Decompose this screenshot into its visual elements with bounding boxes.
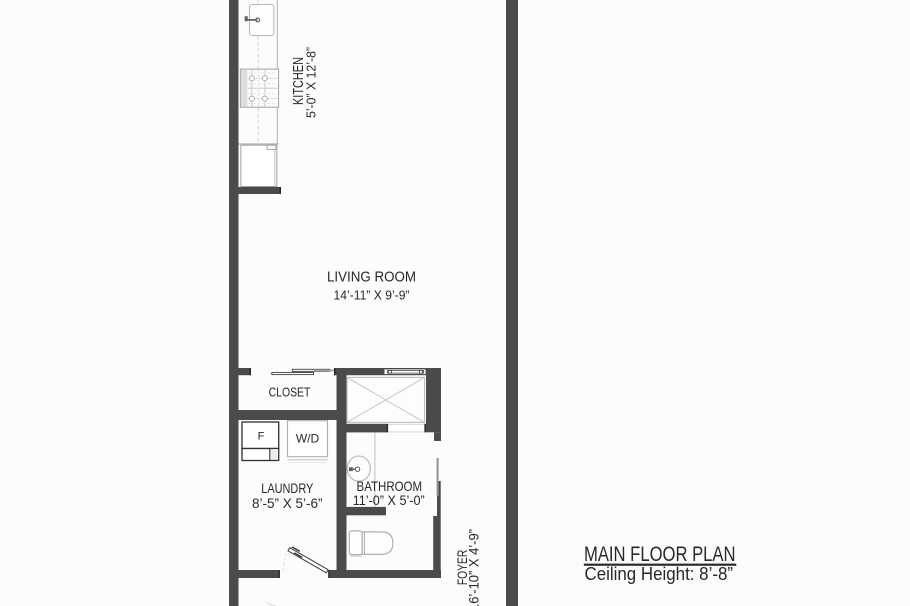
svg-text:LAUNDRY: LAUNDRY: [261, 480, 314, 496]
svg-text:5’-0” X 12’-8”: 5’-0” X 12’-8”: [303, 47, 318, 118]
svg-text:11’-0” X 5’-0”: 11’-0” X 5’-0”: [353, 493, 425, 508]
svg-text:BATHROOM: BATHROOM: [357, 478, 423, 494]
svg-text:W/D: W/D: [296, 432, 320, 446]
svg-text:16’-10” X 4’-9”: 16’-10” X 4’-9”: [466, 529, 481, 606]
svg-text:14’-11” X 9’-9”: 14’-11” X 9’-9”: [334, 288, 410, 303]
svg-text:F: F: [258, 430, 265, 442]
svg-text:CLOSET: CLOSET: [269, 385, 311, 399]
svg-text:LIVING ROOM: LIVING ROOM: [327, 268, 416, 285]
svg-text:8’-5” X 5’-6”: 8’-5” X 5’-6”: [252, 496, 323, 511]
svg-text:Ceiling Height: 8’-8”: Ceiling Height: 8’-8”: [585, 563, 734, 584]
